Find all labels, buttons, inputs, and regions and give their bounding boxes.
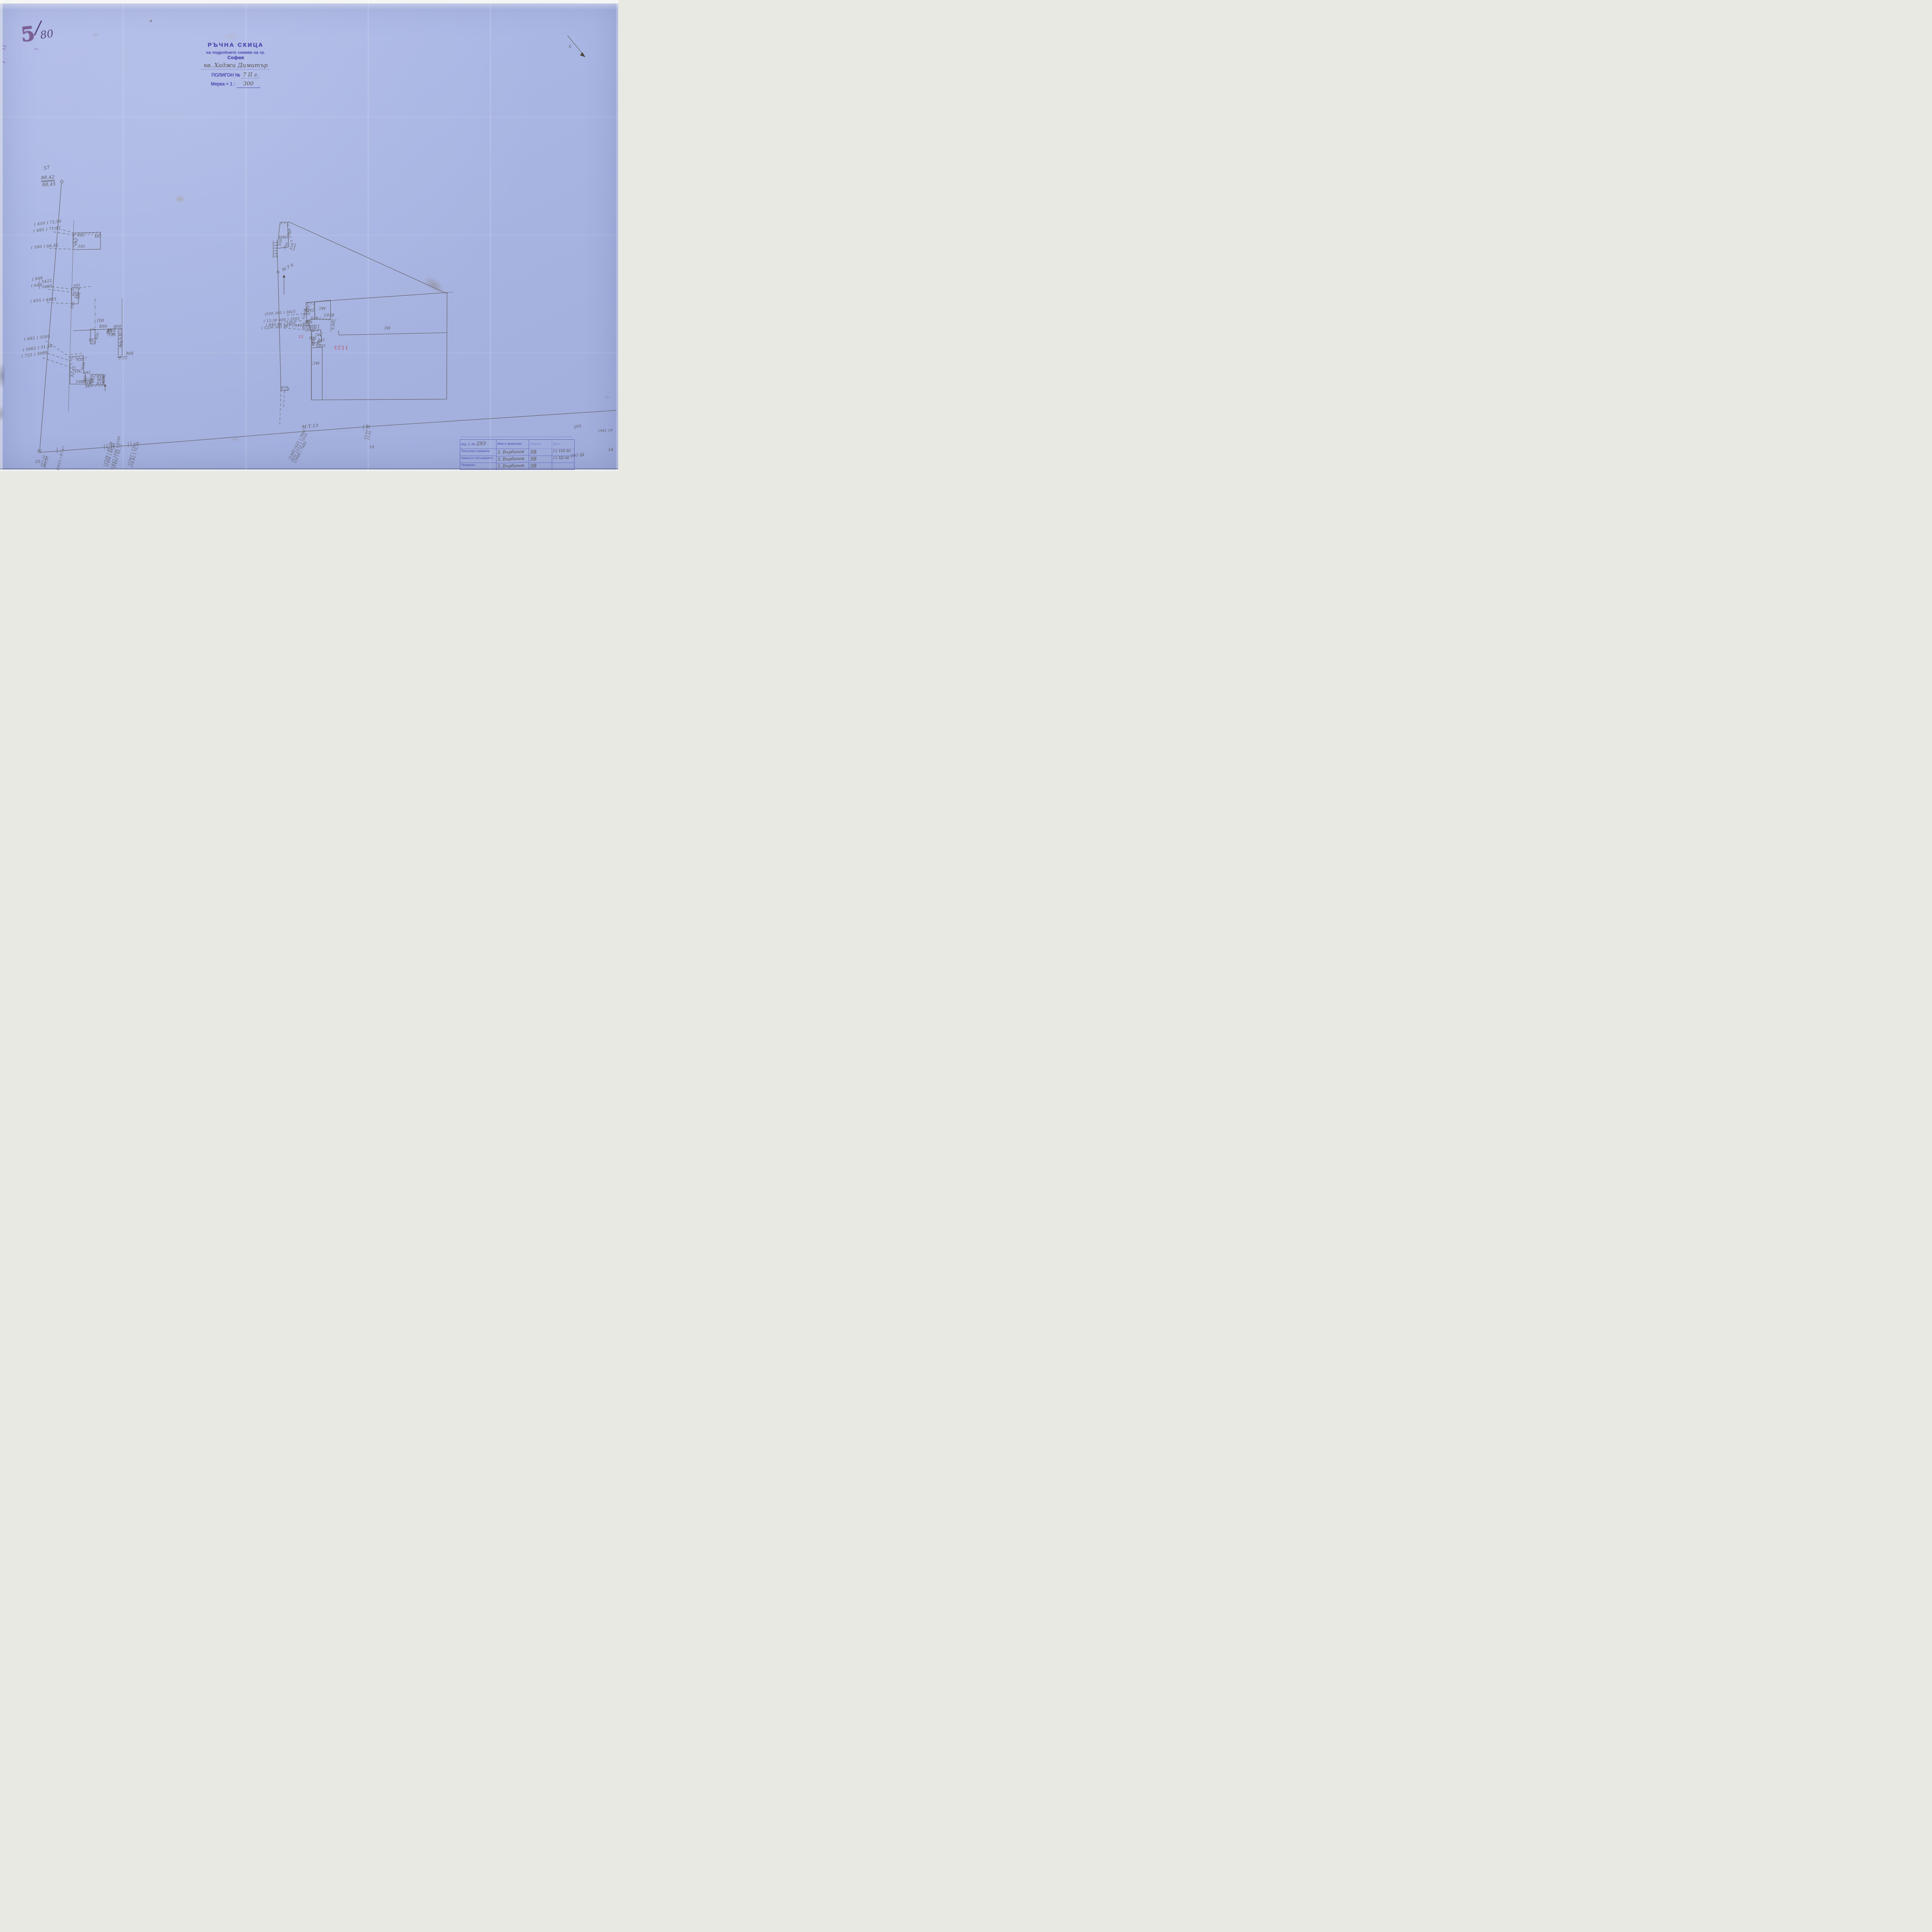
- map-label: 1038: [324, 314, 334, 318]
- parcel-boundary: [307, 293, 447, 400]
- header-signature: Подпис: [529, 440, 552, 449]
- road-structure: [281, 387, 288, 391]
- map-label: 595: [78, 245, 85, 249]
- header-date: Дата: [552, 440, 575, 449]
- stamp-subtitle-city: София: [227, 55, 244, 60]
- map-label: МН: [279, 235, 286, 238]
- map-label: 935: [76, 358, 84, 362]
- table-header-row: кад. п. №293 Име и фамилия Подпис Дата: [460, 440, 574, 449]
- row-name: З. Върбанов: [497, 463, 529, 471]
- row-date: 11 VIII 80: [552, 449, 575, 456]
- mt6-arrowhead: [283, 275, 286, 277]
- station-ticks: [57, 424, 367, 453]
- map-label: 1085: [76, 380, 86, 384]
- map-label: 800: [99, 325, 107, 329]
- map-label: ПН: [97, 319, 104, 323]
- table-row: Проверил З. Върбанов ЗВ: [460, 463, 574, 470]
- stairs-symbol: [273, 240, 277, 258]
- row-signature: ЗВ: [529, 463, 552, 470]
- small-arrow: [104, 384, 106, 386]
- map-label: 305: [318, 345, 326, 348]
- map-label: ПС: [89, 339, 95, 342]
- map-label: 88,45: [42, 182, 56, 187]
- row-label: Попълнил снимката: [460, 449, 497, 456]
- map-label: 602: [77, 234, 85, 238]
- map-label: 19: [369, 446, 374, 449]
- map-label: П: [119, 333, 122, 337]
- map-label: МС: [318, 306, 326, 310]
- row-label: Нанесъл попълването: [460, 456, 497, 463]
- north-arrowhead: [580, 52, 585, 57]
- map-label: 35: [35, 460, 41, 464]
- map-label: 57: [43, 165, 50, 171]
- header-name: Име и фамилия: [497, 440, 529, 449]
- map-label: 1123: [334, 345, 348, 350]
- scanned-survey-sketch: 5788,4288,45( 410 ) 72,90( 495 ) 71,37( …: [0, 0, 618, 471]
- map-label: 88,42: [41, 175, 55, 182]
- sketch-linework: [0, 0, 618, 471]
- stamp-polygon-value: 7 ІІ г.: [241, 72, 260, 78]
- map-label: 16: [608, 448, 614, 452]
- row-signature: ЗВ: [529, 456, 552, 463]
- map-label: 33: [299, 334, 304, 338]
- survey-point: [61, 180, 63, 183]
- kad-number: 293: [476, 441, 486, 447]
- stamp-polygon-label: ПОЛИГОН №: [211, 72, 240, 78]
- stamp-polygon-line: ПОЛИГОН № 7 ІІ г.: [201, 72, 270, 78]
- map-label: МН: [126, 352, 134, 356]
- pencil-lines: [38, 36, 616, 453]
- stamp-scale-line: Мерка = 1 : 300: [201, 81, 270, 87]
- stamp-quarter-handwritten: кв. Хаджи Димитър: [201, 62, 270, 70]
- stamp-subtitle-prefix: на подробните снимки на гр.: [206, 50, 265, 55]
- building-ms3-outline: [311, 347, 322, 400]
- row-date: 11 XII 80: [552, 456, 575, 463]
- purple-margin-marks: [2, 45, 38, 63]
- folio-number: 5/80: [21, 19, 53, 46]
- folio-of: 80: [39, 28, 54, 41]
- map-label: НС: [95, 235, 101, 239]
- stamp-scale-value: 300: [236, 81, 261, 88]
- table-row: Нанесъл попълването З. Върбанов ЗВ 11 XI…: [460, 456, 574, 463]
- stamp-subtitle: на подробните снимки на гр. София: [201, 50, 270, 60]
- street-north-line: [289, 222, 446, 293]
- map-label: 185: [109, 334, 116, 337]
- table-top-dashed-line: [461, 437, 572, 437]
- row-date: [552, 463, 575, 470]
- row-label: Проверил: [460, 463, 497, 470]
- signature-table: кад. п. №293 Име и фамилия Подпис Дата П…: [460, 439, 575, 470]
- stamp-title: РЪЧНА СКИЦА: [201, 42, 270, 48]
- row-signature: ЗВ: [529, 449, 552, 456]
- header-kad-cell: кад. п. №293: [460, 440, 497, 449]
- stamp-scale-label: Мерка = 1 :: [211, 81, 235, 87]
- parcel-north-boundary: [306, 293, 447, 303]
- map-label: 1941 19: [598, 429, 613, 433]
- map-label: МС: [312, 361, 320, 364]
- kad-label: кад. п. №: [461, 442, 475, 446]
- table-row: Попълнил снимката З. Върбанов ЗВ 11 VIII…: [460, 449, 574, 456]
- map-label: НС: [384, 325, 390, 329]
- title-stamp: РЪЧНА СКИЦА на подробните снимки на гр. …: [201, 42, 270, 87]
- folio-main: 5: [20, 22, 36, 46]
- parcel-interior-line: [338, 331, 447, 335]
- map-label: 257: [85, 385, 92, 389]
- map-label: 142: [83, 371, 91, 375]
